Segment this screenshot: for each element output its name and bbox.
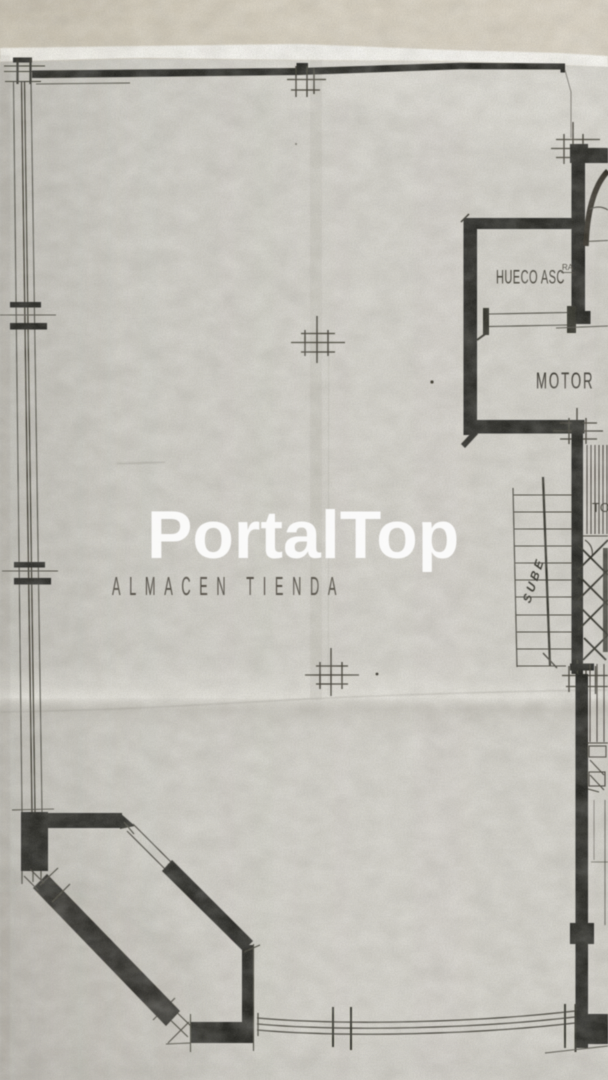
svg-text:PortalTop: PortalTop	[147, 497, 459, 573]
